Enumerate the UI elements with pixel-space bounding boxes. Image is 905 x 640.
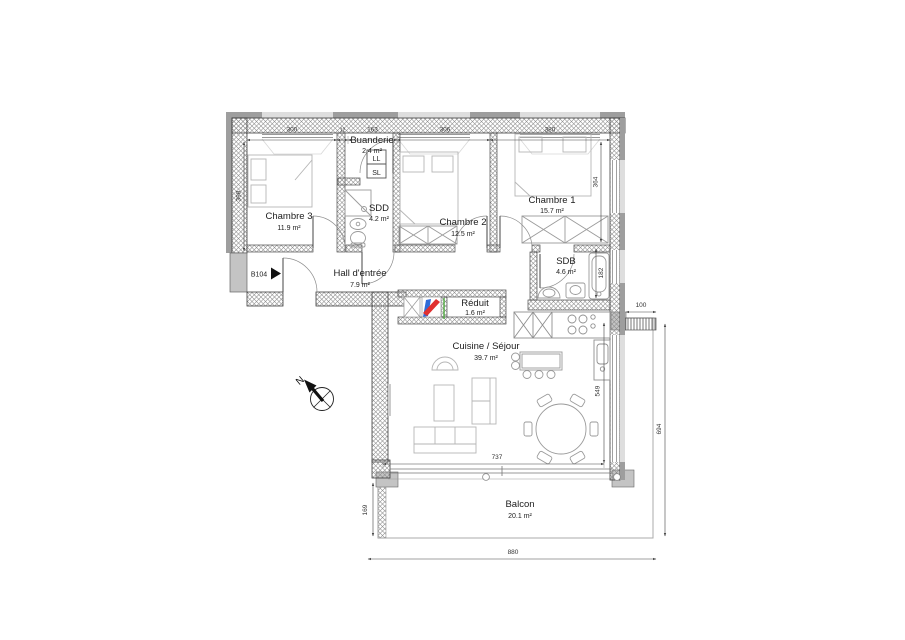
room-area-reduit: 1.6 m²: [465, 310, 486, 317]
room-label-reduit: Réduit: [461, 298, 489, 309]
bed-chambre3: [248, 155, 312, 207]
window-band-chambre3: [262, 112, 333, 118]
chair: [524, 422, 532, 436]
washbasin-sdb: [538, 287, 560, 298]
entrance-arrow-icon: [271, 268, 281, 280]
room-area-balcon: 20.1 m²: [508, 513, 532, 520]
stool: [512, 362, 520, 370]
sofa-main: [414, 427, 476, 453]
room-label-sdd: SDD: [369, 203, 389, 214]
door-arc-entrance: [283, 258, 317, 292]
chair: [536, 393, 552, 407]
room-label-buanderie: Buanderie: [350, 135, 393, 146]
kitchen-sink-column: [594, 340, 610, 380]
door-handle: [483, 474, 490, 481]
dining-table: [524, 393, 598, 464]
room-label-balcon: Balcon: [505, 499, 534, 510]
wall-sdb-left: [530, 252, 537, 300]
stool: [523, 371, 531, 379]
kitchen-counter: [514, 312, 610, 338]
interior-walls: [247, 133, 610, 324]
window-right-living: [611, 335, 626, 462]
entrance-badge: B104: [251, 268, 281, 280]
north-letter: N: [294, 375, 307, 388]
room-area-sdd: 4.2 m²: [369, 216, 390, 223]
technical-shaft: [404, 297, 444, 319]
dim-right-chambre1: 364: [593, 176, 600, 187]
room-area-sdb: 4.6 m²: [556, 269, 577, 276]
north-arrow: N: [294, 375, 333, 411]
dim-balcony-right: 694: [656, 423, 663, 434]
wall-radiator: [388, 384, 391, 416]
chair: [569, 393, 585, 407]
room-label-sdb: SDB: [556, 256, 576, 267]
top-windows: [262, 135, 600, 155]
wall-chambre2-chambre1: [490, 133, 497, 252]
sliding-door-balcony: [390, 466, 620, 480]
island-table: [512, 352, 563, 379]
dim-living-height: 549: [595, 385, 602, 396]
chair: [590, 422, 598, 436]
window-band-chambre2: [398, 112, 470, 118]
window-band-chambre1: [520, 112, 600, 118]
room-area-cuisine: 39.7 m²: [474, 355, 498, 362]
balcony-divider-wall: [625, 318, 656, 330]
dim-top-chambre2: 306: [440, 127, 451, 134]
chair: [536, 451, 552, 465]
stool: [535, 371, 543, 379]
unit-number: B104: [251, 272, 267, 279]
dim-top-buanderie: 163: [367, 127, 378, 134]
dim-living-width: 737: [492, 454, 503, 461]
balcony-left-rail: [378, 487, 386, 538]
dim-top-chambre1: 380: [545, 127, 556, 134]
room-label-hall: Hall d'entrée: [333, 268, 386, 279]
bed-chambre1: [515, 134, 591, 196]
shower-sdd: [345, 190, 371, 216]
sofa-side: [472, 378, 496, 424]
room-area-buanderie: 2.4 m²: [362, 148, 383, 155]
floor-plan-page: 300 12 163 306 380 398 364 182 100 549 6…: [0, 0, 905, 640]
room-label-chambre3: Chambre 3: [266, 211, 313, 222]
label-dryer: SL: [372, 170, 381, 177]
wall-buanderie-sdd: [338, 178, 360, 185]
dim-balcony-depth: 169: [362, 504, 369, 515]
armchair: [432, 357, 458, 370]
washbasin-sdd: [350, 219, 366, 230]
floor-plan: 300 12 163 306 380 398 364 182 100 549 6…: [0, 0, 905, 640]
bed-chambre2: [400, 152, 458, 224]
wall-west-living: [372, 292, 388, 462]
coffee-table: [434, 385, 454, 421]
room-label-cuisine: Cuisine / Séjour: [452, 341, 519, 352]
wall-entrance-pier: [230, 253, 247, 292]
room-area-chambre1: 15.7 m²: [540, 208, 564, 215]
dim-top-wall: 12: [340, 128, 346, 134]
room-label-chambre2: Chambre 2: [440, 217, 487, 228]
wall-sdb-kitchen: [528, 300, 610, 310]
label-washing-machine: LL: [373, 156, 381, 163]
wall-left: [232, 118, 247, 253]
room-area-hall: 7.9 m²: [350, 282, 371, 289]
room-label-chambre1: Chambre 1: [529, 195, 576, 206]
window-right-sdb: [611, 250, 626, 283]
door-handle: [614, 474, 621, 481]
dim-balcony-wall: 100: [636, 302, 647, 309]
stool: [512, 353, 520, 361]
dim-bottom-total: 880: [508, 549, 519, 556]
stool: [547, 371, 555, 379]
chair: [569, 451, 585, 465]
dim-top-chambre3: 300: [287, 127, 298, 134]
dim-left-chambre3: 398: [236, 190, 243, 201]
window-right-chambre1: [611, 160, 626, 213]
wardrobe-chambre2: [399, 226, 457, 244]
wall-chambre3-sdd: [337, 133, 345, 252]
room-area-chambre3: 11.9 m²: [277, 225, 301, 232]
room-area-chambre2: 12.5 m²: [451, 231, 475, 238]
dim-sdb-bathtub: 182: [598, 267, 605, 278]
wardrobe-chambre1: [522, 216, 608, 243]
toilet-sdb: [566, 283, 585, 298]
